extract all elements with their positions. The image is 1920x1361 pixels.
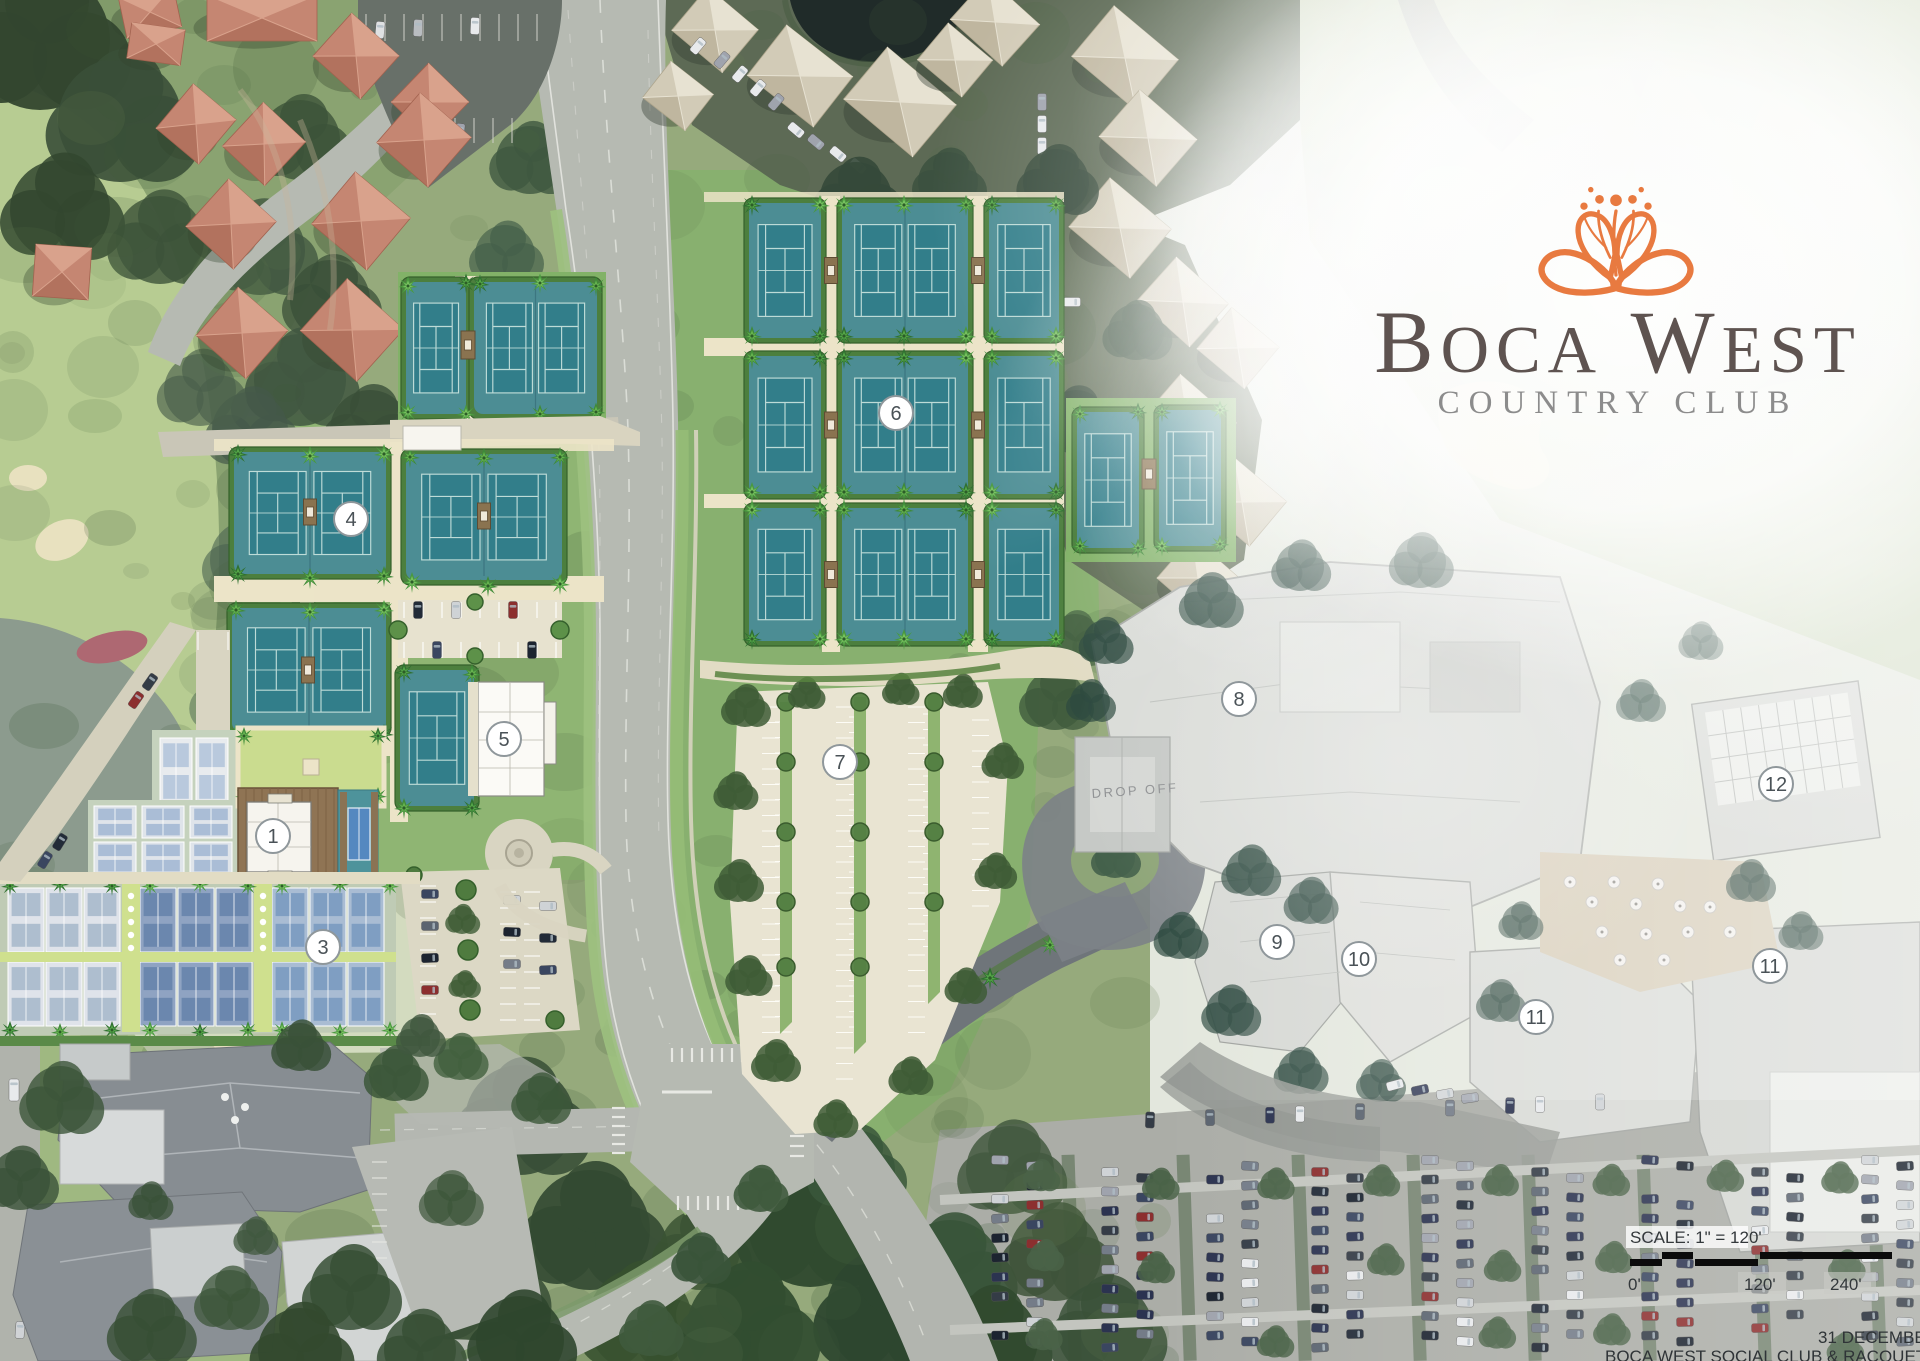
svg-text:8: 8 <box>1233 689 1244 711</box>
svg-text:4: 4 <box>345 509 356 531</box>
svg-text:BOCA WEST SOCIAL CLUB & RACQUE: BOCA WEST SOCIAL CLUB & RACQUET CENTER <box>1605 1347 1920 1361</box>
svg-text:9: 9 <box>1271 932 1282 954</box>
svg-text:11: 11 <box>1760 956 1781 978</box>
svg-text:1: 1 <box>267 826 278 848</box>
svg-text:31 DECEMBER: 31 DECEMBER <box>1818 1328 1920 1347</box>
svg-text:5: 5 <box>498 729 509 751</box>
svg-text:240': 240' <box>1830 1275 1862 1294</box>
svg-text:120': 120' <box>1744 1275 1776 1294</box>
svg-text:12: 12 <box>1765 774 1787 796</box>
svg-text:0': 0' <box>1628 1275 1641 1294</box>
svg-text:COUNTRY CLUB: COUNTRY CLUB <box>1438 385 1799 421</box>
svg-text:7: 7 <box>834 752 845 774</box>
svg-text:11: 11 <box>1526 1007 1547 1029</box>
svg-text:3: 3 <box>317 937 328 959</box>
svg-text:6: 6 <box>890 403 901 425</box>
svg-text:10: 10 <box>1348 949 1370 971</box>
svg-text:SCALE: 1" = 120': SCALE: 1" = 120' <box>1630 1228 1762 1247</box>
